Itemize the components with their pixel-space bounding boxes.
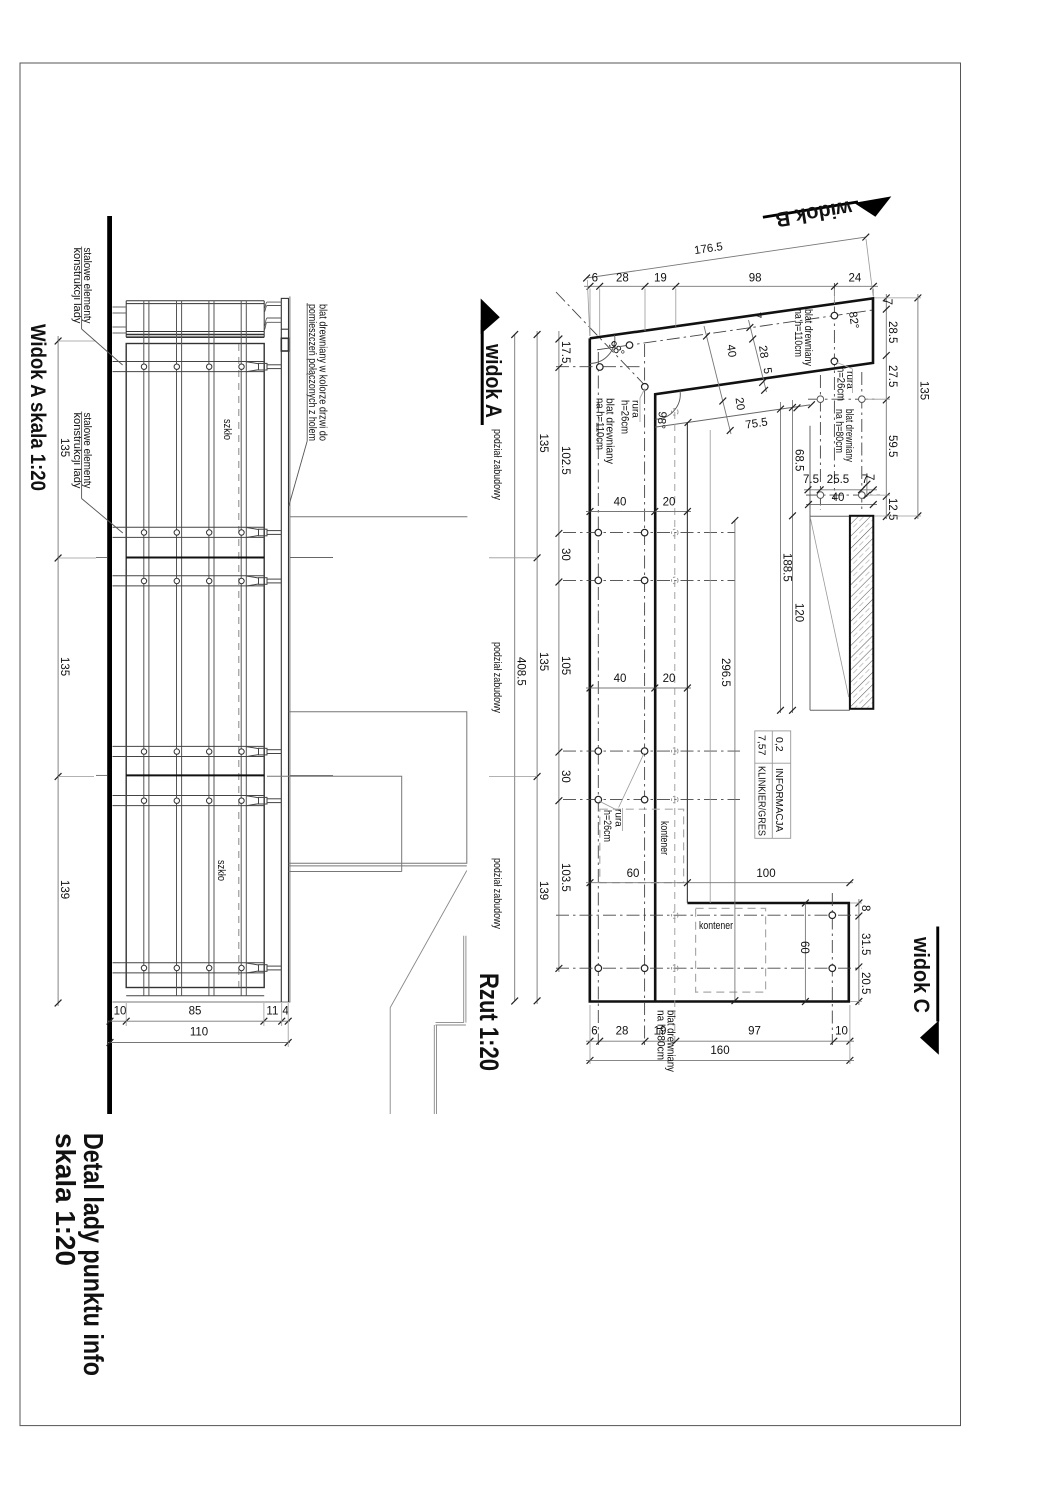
svg-text:24: 24 [849,273,862,285]
svg-text:97: 97 [748,1026,761,1038]
svg-text:widok A: widok A [481,343,506,418]
svg-text:11: 11 [266,1006,278,1018]
svg-text:na h=80cm: na h=80cm [833,409,845,453]
svg-text:20: 20 [663,497,676,509]
svg-text:135: 135 [58,657,70,676]
svg-text:40: 40 [614,497,627,509]
svg-text:98: 98 [749,273,762,285]
svg-text:139: 139 [537,881,549,900]
svg-text:KLINKIER/GRES: KLINKIER/GRES [756,766,768,836]
svg-text:h=26cm: h=26cm [619,400,631,434]
svg-text:139: 139 [58,880,70,899]
svg-text:7: 7 [862,474,868,486]
svg-text:widok C: widok C [909,936,934,1013]
svg-text:30: 30 [559,770,571,783]
svg-text:59.5: 59.5 [886,435,898,457]
svg-text:160: 160 [710,1045,729,1057]
svg-text:6: 6 [592,273,598,285]
svg-text:7.5: 7.5 [803,474,819,486]
svg-text:6: 6 [591,1026,597,1038]
svg-text:30: 30 [559,548,571,561]
svg-text:20: 20 [733,397,747,411]
svg-text:60: 60 [627,868,640,880]
svg-text:25.5: 25.5 [827,474,849,486]
svg-text:31.5: 31.5 [859,933,871,955]
svg-text:103.5: 103.5 [559,863,571,892]
svg-text:40: 40 [724,344,738,358]
svg-text:105: 105 [559,656,571,675]
svg-text:19: 19 [654,273,667,285]
svg-text:98°: 98° [654,411,668,430]
svg-text:INFORMACJA: INFORMACJA [773,768,785,832]
svg-text:na h=80cm: na h=80cm [655,1010,667,1060]
svg-text:82°: 82° [846,311,860,330]
svg-text:85: 85 [189,1006,202,1018]
svg-text:135: 135 [918,381,930,400]
svg-text:68.5: 68.5 [793,449,805,471]
svg-text:Widok A skala 1:20: Widok A skala 1:20 [26,324,49,491]
svg-text:10: 10 [835,1026,848,1038]
svg-text:100: 100 [756,868,775,880]
svg-text:12.5: 12.5 [886,498,898,520]
svg-text:na h=110cm: na h=110cm [594,398,606,450]
svg-text:10: 10 [114,1006,127,1018]
svg-text:60: 60 [798,941,810,954]
svg-text:podział zabudowy: podział zabudowy [491,429,503,500]
svg-text:110: 110 [190,1027,208,1039]
svg-text:rura: rura [630,400,641,418]
svg-text:podział zabudowy: podział zabudowy [491,642,503,713]
svg-text:szkło: szkło [215,860,227,881]
svg-text:135: 135 [537,652,549,671]
svg-text:kontener: kontener [658,821,670,855]
svg-text:135: 135 [58,438,70,457]
svg-text:40: 40 [614,673,627,685]
svg-text:szkło: szkło [221,419,233,440]
svg-text:7: 7 [881,299,893,305]
svg-text:28: 28 [616,1026,629,1038]
svg-text:28: 28 [756,345,770,359]
svg-text:7,57: 7,57 [756,735,768,756]
svg-text:20: 20 [663,673,676,685]
svg-text:Detal lady punktu info: Detal lady punktu info [78,1133,109,1376]
svg-text:20.5: 20.5 [859,972,871,994]
svg-text:27.5: 27.5 [886,365,898,387]
svg-text:40: 40 [832,492,845,504]
svg-text:28.5: 28.5 [886,321,898,343]
svg-text:Rzut 1:20: Rzut 1:20 [474,973,504,1071]
svg-text:na h=110cm: na h=110cm [792,309,804,357]
svg-text:102.5: 102.5 [559,446,571,475]
svg-text:skala 1:20: skala 1:20 [50,1133,81,1266]
svg-text:188.5: 188.5 [781,553,793,582]
svg-text:296.5: 296.5 [719,658,731,687]
svg-text:kontener: kontener [699,920,733,932]
svg-text:rura: rura [613,809,624,827]
svg-text:rura: rura [844,371,855,389]
svg-text:8: 8 [859,905,871,911]
svg-text:28: 28 [616,273,629,285]
svg-text:podział zabudowy: podział zabudowy [491,858,503,929]
svg-text:h=26cm: h=26cm [601,810,613,842]
svg-text:120: 120 [793,603,805,622]
svg-text:408.5: 408.5 [515,657,527,686]
svg-text:0,2: 0,2 [773,737,785,752]
svg-text:135: 135 [537,434,549,453]
svg-text:17.5: 17.5 [559,341,571,363]
